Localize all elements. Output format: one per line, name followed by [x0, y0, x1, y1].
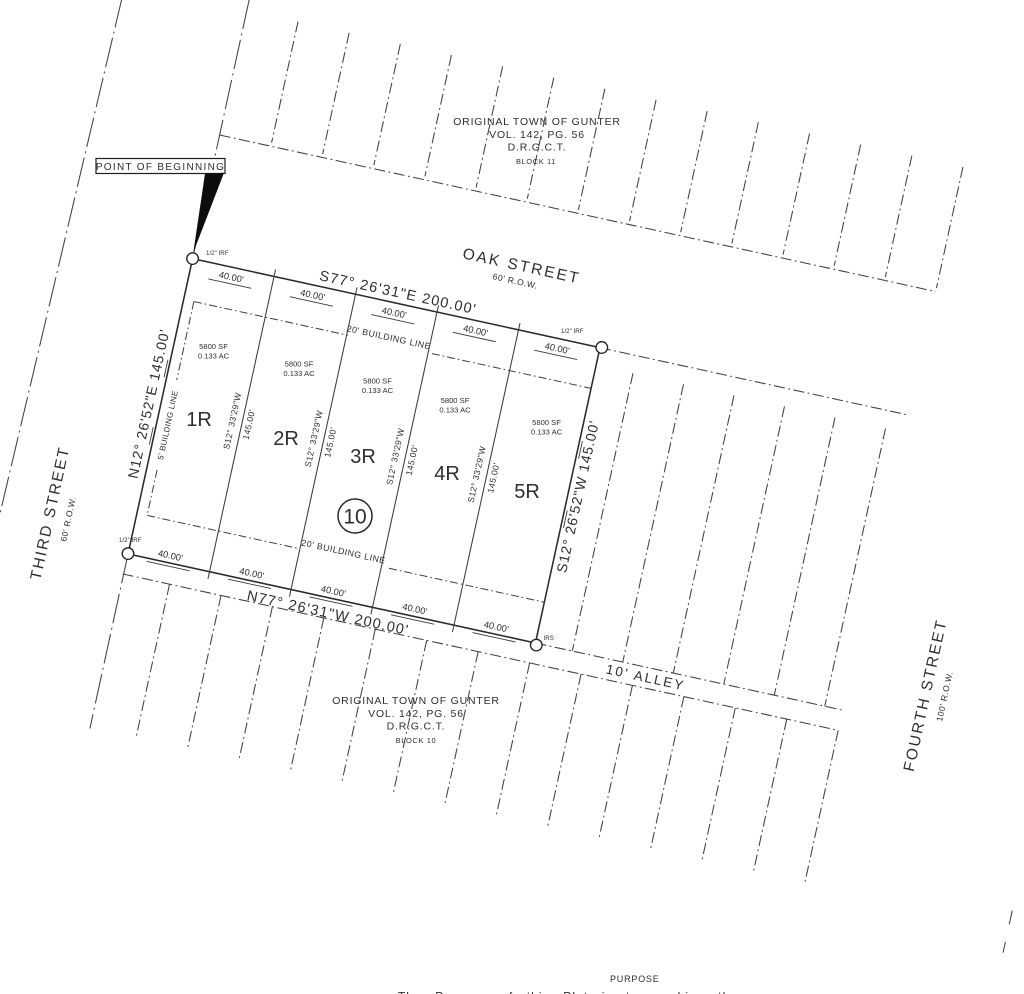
svg-text:5R: 5R	[514, 481, 540, 503]
svg-text:10: 10	[343, 506, 366, 529]
svg-text:5800 SF: 5800 SF	[363, 377, 392, 386]
svg-text:5800 SF: 5800 SF	[532, 418, 561, 427]
svg-text:0.133 AC: 0.133 AC	[198, 351, 230, 360]
svg-text:4R: 4R	[434, 463, 460, 485]
svg-text:0.133 AC: 0.133 AC	[439, 405, 471, 414]
svg-text:3R: 3R	[350, 446, 376, 468]
svg-text:5800 SF: 5800 SF	[199, 342, 228, 351]
svg-text:POINT OF BEGINNING: POINT OF BEGINNING	[96, 162, 225, 173]
svg-text:0.133 AC: 0.133 AC	[362, 386, 394, 395]
svg-text:1/2" IRF: 1/2" IRF	[206, 250, 229, 257]
svg-text:D.R.G.C.T.: D.R.G.C.T.	[387, 721, 446, 733]
svg-text:1R: 1R	[186, 409, 212, 431]
svg-text:1/2" IRF: 1/2" IRF	[119, 537, 142, 544]
svg-text:IRS: IRS	[544, 635, 554, 642]
svg-text:5800 SF: 5800 SF	[285, 360, 314, 369]
svg-text:0.133 AC: 0.133 AC	[283, 369, 315, 378]
svg-text:VOL. 142, PG. 56: VOL. 142, PG. 56	[368, 708, 464, 720]
svg-text:D.R.G.C.T.: D.R.G.C.T.	[508, 142, 567, 154]
svg-text:1/2" IRF: 1/2" IRF	[561, 328, 584, 335]
svg-text:ORIGINAL TOWN OF GUNTER: ORIGINAL TOWN OF GUNTER	[332, 695, 500, 707]
svg-text:BLOCK 11: BLOCK 11	[516, 157, 556, 166]
svg-text:The Purpose of this Plat is to: The Purpose of this Plat is to combine t…	[398, 990, 738, 994]
svg-text:0.133 AC: 0.133 AC	[531, 427, 563, 436]
svg-text:ORIGINAL TOWN OF GUNTER: ORIGINAL TOWN OF GUNTER	[453, 116, 621, 128]
svg-text:VOL. 142, PG. 56: VOL. 142, PG. 56	[489, 129, 585, 141]
svg-text:2R: 2R	[273, 428, 299, 450]
svg-text:PURPOSE: PURPOSE	[610, 974, 660, 984]
svg-text:5800 SF: 5800 SF	[441, 396, 470, 405]
svg-text:BLOCK 10: BLOCK 10	[396, 736, 437, 745]
